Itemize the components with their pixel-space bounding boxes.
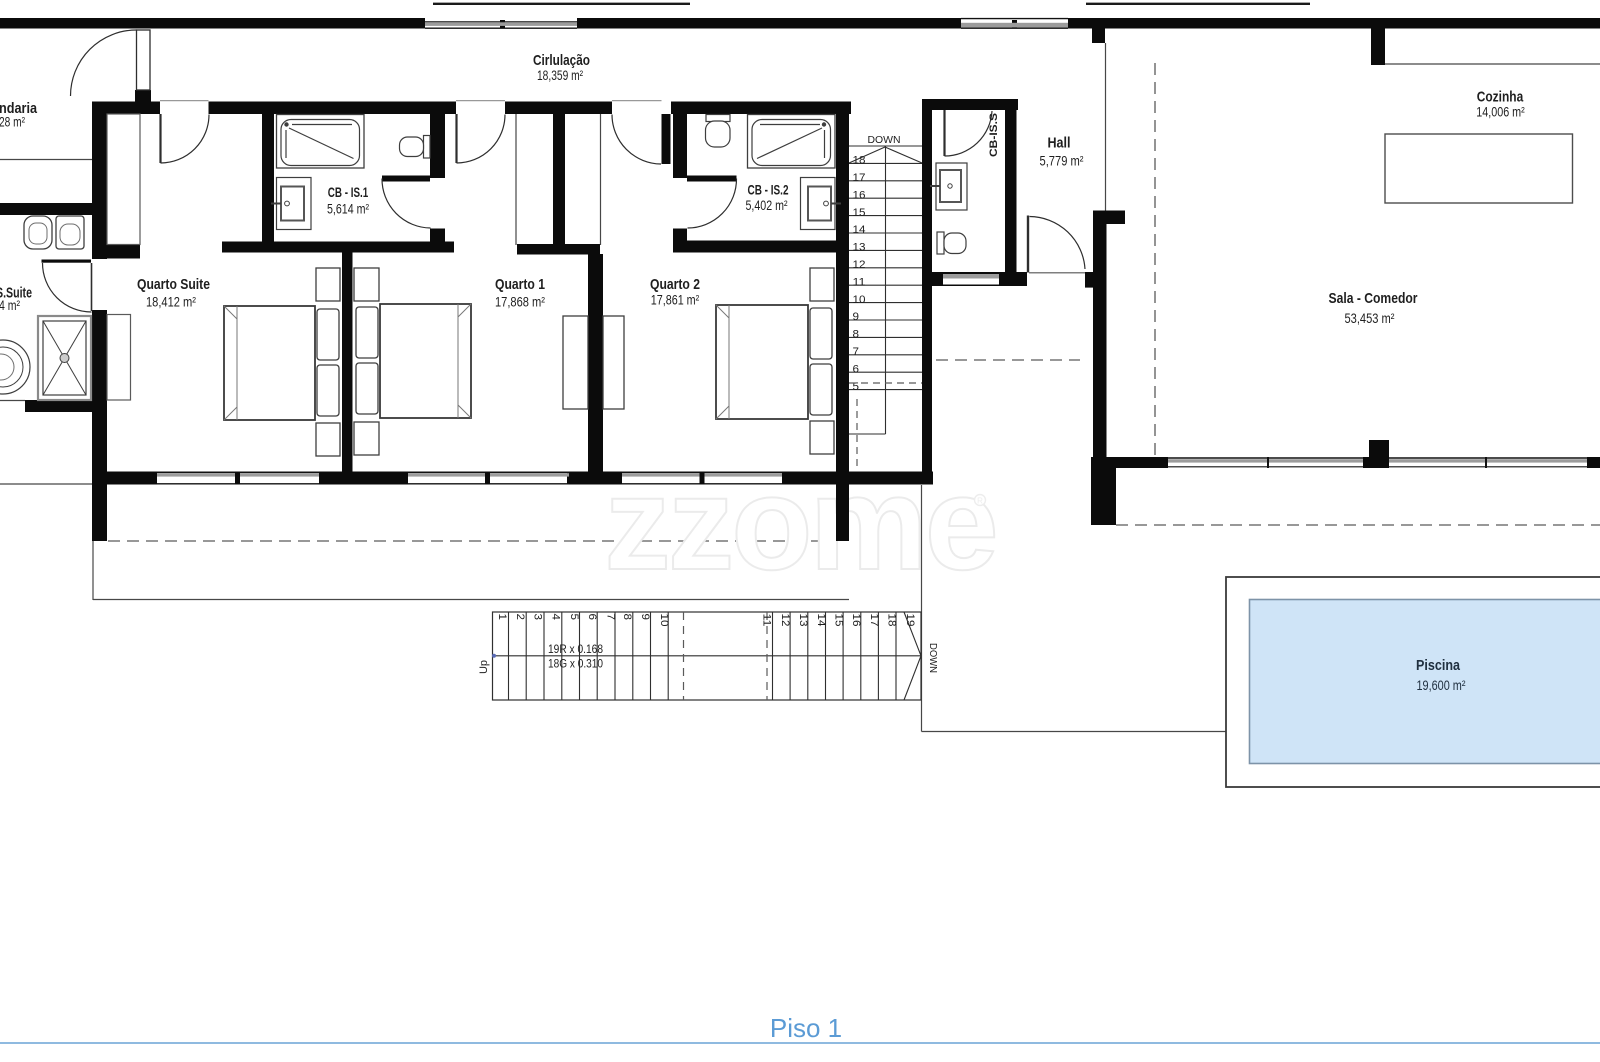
svg-text:18G x 0.310: 18G x 0.310	[548, 659, 603, 671]
svg-text:53,453 m²: 53,453 m²	[1345, 311, 1395, 326]
svg-text:10: 10	[658, 614, 670, 627]
svg-text:Sala - Comedor: Sala - Comedor	[1329, 290, 1418, 307]
svg-text:CB - IS.1: CB - IS.1	[328, 185, 369, 200]
svg-text:Quarto Suite: Quarto Suite	[137, 276, 210, 293]
svg-text:Piso 1: Piso 1	[770, 1013, 842, 1043]
svg-text:8: 8	[853, 329, 860, 341]
svg-text:13: 13	[797, 614, 809, 627]
svg-text:17: 17	[868, 614, 880, 627]
svg-text:7: 7	[605, 614, 617, 621]
svg-text:8: 8	[621, 614, 633, 621]
svg-text:16: 16	[853, 189, 866, 201]
svg-text:17,861 m²: 17,861 m²	[651, 293, 700, 308]
svg-text:CB - IS.2: CB - IS.2	[748, 183, 789, 198]
svg-text:15: 15	[833, 614, 845, 627]
svg-text:6: 6	[586, 614, 598, 621]
svg-text:1: 1	[496, 614, 508, 621]
svg-text:2: 2	[514, 614, 526, 621]
svg-text:28 m²: 28 m²	[0, 115, 25, 130]
svg-text:14: 14	[815, 614, 827, 627]
svg-text:Hall: Hall	[1048, 135, 1071, 152]
svg-text:5,614 m²: 5,614 m²	[327, 202, 369, 217]
svg-text:11: 11	[761, 614, 773, 627]
svg-text:9: 9	[639, 614, 651, 621]
svg-text:5,402 m²: 5,402 m²	[746, 198, 788, 213]
svg-text:13: 13	[853, 242, 866, 254]
svg-text:11: 11	[853, 276, 866, 288]
svg-text:6: 6	[853, 363, 860, 375]
svg-text:Cirlulação: Cirlulação	[533, 52, 590, 69]
svg-text:19,600 m²: 19,600 m²	[1417, 678, 1466, 693]
svg-text:5: 5	[568, 614, 580, 621]
svg-text:4: 4	[550, 614, 562, 621]
svg-text:CB-IS.S: CB-IS.S	[988, 113, 1000, 157]
svg-text:4 m²: 4 m²	[0, 298, 20, 313]
svg-text:17,868 m²: 17,868 m²	[495, 295, 545, 310]
svg-text:DOWN: DOWN	[868, 134, 901, 146]
svg-text:19: 19	[904, 614, 916, 627]
svg-text:Quarto 2: Quarto 2	[650, 276, 700, 293]
svg-text:14: 14	[853, 224, 866, 236]
svg-text:3: 3	[532, 614, 544, 621]
svg-text:9: 9	[853, 311, 860, 323]
svg-text:7: 7	[853, 346, 860, 358]
svg-text:DOWN: DOWN	[927, 643, 939, 673]
svg-text:18,359 m²: 18,359 m²	[537, 68, 583, 83]
svg-text:5,779 m²: 5,779 m²	[1040, 154, 1084, 169]
svg-text:14,006 m²: 14,006 m²	[1476, 105, 1525, 120]
svg-text:16: 16	[850, 614, 862, 627]
svg-text:19R x 0.168: 19R x 0.168	[548, 644, 603, 656]
svg-text:17: 17	[853, 172, 866, 184]
svg-text:18: 18	[886, 614, 898, 627]
svg-text:12: 12	[853, 259, 866, 271]
svg-text:Piscina: Piscina	[1416, 657, 1461, 674]
svg-text:12: 12	[779, 614, 791, 627]
svg-text:Quarto 1: Quarto 1	[495, 276, 545, 293]
svg-text:10: 10	[853, 294, 866, 306]
svg-text:18,412 m²: 18,412 m²	[146, 295, 196, 310]
svg-text:Cozinha: Cozinha	[1477, 89, 1524, 106]
svg-text:R: R	[977, 497, 983, 506]
svg-text:15: 15	[853, 207, 866, 219]
svg-text:Up: Up	[478, 660, 490, 674]
